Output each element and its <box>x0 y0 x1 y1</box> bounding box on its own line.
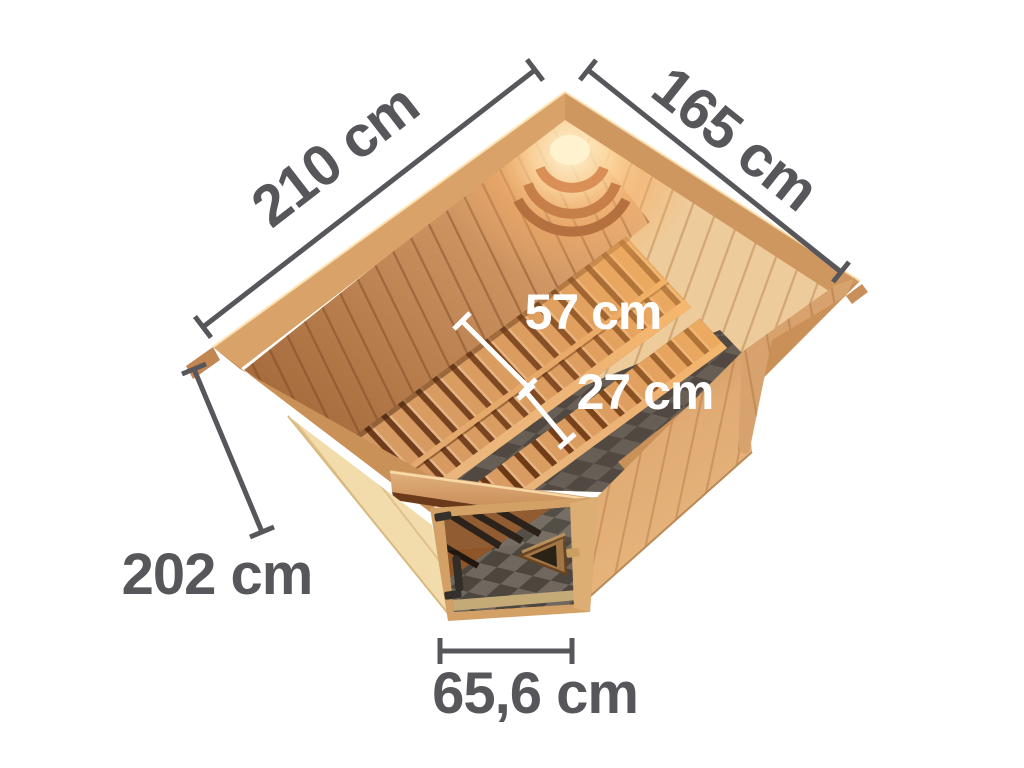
sauna-lamp <box>440 22 700 282</box>
dimension-door-width: 65,6 cm <box>432 638 638 726</box>
sauna-dimension-diagram: 210 cm 165 cm 202 cm 65,6 cm 57 <box>0 0 1024 768</box>
door-glass-view <box>440 500 590 615</box>
dimension-line <box>194 369 262 532</box>
dimension-lower-bench-label: 27 cm <box>577 364 714 420</box>
sauna-illustration: 210 cm 165 cm 202 cm 65,6 cm 57 <box>0 0 1024 768</box>
glass-tint <box>440 500 590 615</box>
glass-door <box>430 497 598 621</box>
dimension-height-label: 202 cm <box>122 542 313 607</box>
dimension-door-width-label: 65,6 cm <box>432 661 638 726</box>
lamp-bulb <box>550 135 590 165</box>
dimension-main-bench-label: 57 cm <box>525 284 662 340</box>
door-latch <box>566 548 580 558</box>
